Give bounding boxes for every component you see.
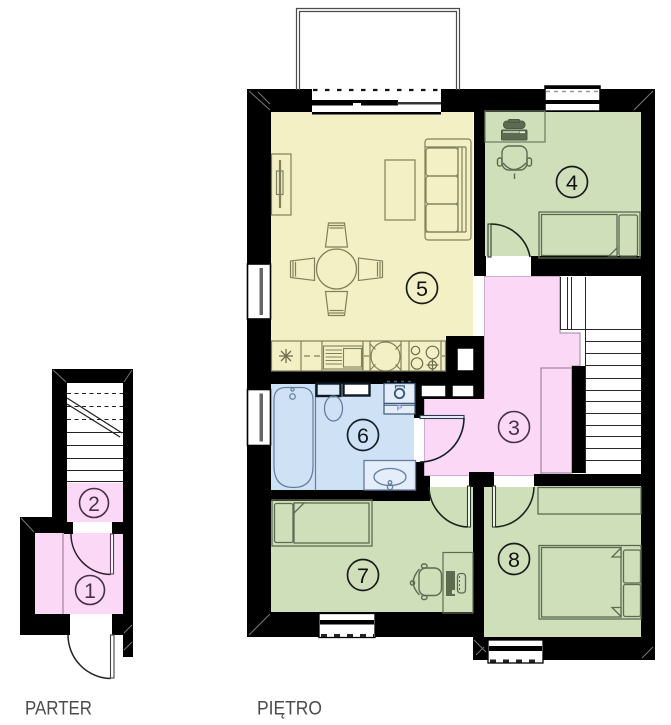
svg-text:8: 8 [508, 548, 520, 572]
svg-text:5: 5 [416, 277, 428, 301]
svg-text:2: 2 [88, 493, 100, 516]
svg-text:PARTER: PARTER [25, 698, 92, 720]
svg-text:7: 7 [357, 564, 369, 588]
svg-text:PIĘTRO: PIĘTRO [257, 698, 322, 720]
svg-text:P: P [397, 403, 403, 413]
svg-text:6: 6 [357, 424, 369, 448]
svg-text:4: 4 [566, 171, 578, 195]
svg-text:3: 3 [508, 416, 520, 440]
svg-text:1: 1 [84, 580, 96, 603]
